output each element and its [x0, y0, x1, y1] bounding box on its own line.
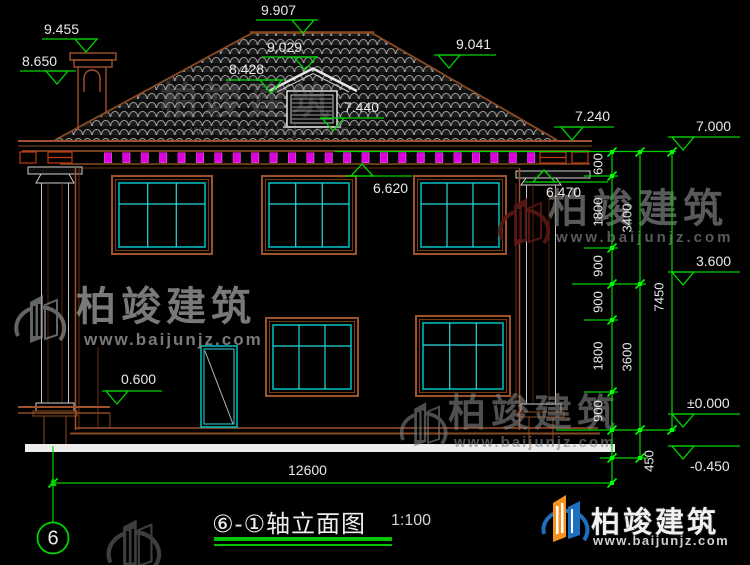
- watermark-url: www.baijunjz.com: [555, 229, 733, 246]
- watermark-right-low: 柏竣建筑 www.baijunjz.com: [402, 393, 620, 451]
- level-dormer-eave: 8.428: [229, 62, 264, 76]
- level-ridge: 9.907: [261, 3, 296, 17]
- level-chimney-top: 9.455: [44, 22, 79, 36]
- entry-door: [201, 346, 237, 427]
- window-f2-left: [112, 176, 212, 254]
- window-f1-mid: [266, 318, 358, 396]
- cornice: [18, 141, 592, 178]
- dim-floor-height: 3400: [621, 204, 634, 233]
- watermark-right-mid: 柏竣建筑 www.baijunjz.com: [500, 187, 733, 246]
- drawing-scale: 1:100: [391, 512, 431, 530]
- dim-floor-height: 3600: [621, 343, 634, 372]
- watermark-text: 柏竣建筑: [160, 81, 336, 123]
- dim-segment: 600: [592, 153, 605, 175]
- dim-total-height: 7450: [653, 283, 666, 312]
- drawing-title: ⑥-①轴立面图: [212, 504, 366, 539]
- dim-foot: 450: [643, 450, 656, 472]
- level-chimney-cap: 8.650: [22, 54, 57, 68]
- brand-logo-icon: [543, 495, 587, 542]
- level-floor1: ±0.000: [687, 396, 730, 410]
- level-floor2: 3.600: [696, 254, 731, 268]
- dim-segment: 900: [592, 400, 605, 422]
- level-parapet: 7.000: [696, 119, 731, 133]
- dim-segment: 1800: [592, 342, 605, 371]
- dentil-band: [104, 153, 542, 164]
- watermark-url: www.baijunjz.com: [453, 434, 615, 451]
- window-f2-mid: [262, 176, 356, 254]
- title-underline-thin: [214, 544, 392, 546]
- title-underline-thick: [214, 537, 392, 541]
- right-capital-band: [516, 171, 590, 178]
- window-f2-right: [414, 176, 506, 254]
- level-dormer-ridge: 9.029: [267, 40, 302, 54]
- elevation-linework: 柏竣建筑 www.baijunjz.com 柏竣建筑 www.baijunjz.…: [0, 0, 750, 565]
- watermark-logo-icon: [109, 519, 159, 565]
- watermark-text: 柏竣建筑: [76, 285, 256, 329]
- left-capital-band: [28, 167, 82, 174]
- level-eave-top: 7.240: [575, 109, 610, 123]
- watermark-left: 柏竣建筑 www.baijunjz.com: [16, 285, 262, 349]
- level-porch: 0.600: [121, 372, 156, 386]
- dim-segment: 1800: [592, 198, 605, 227]
- dim-segment: 900: [592, 255, 605, 277]
- dim-segment: 900: [592, 291, 605, 313]
- cad-elevation-drawing: 柏竣建筑 www.baijunjz.com 柏竣建筑 www.baijunjz.…: [0, 0, 750, 565]
- axis-bubble-number: 6: [47, 528, 58, 551]
- level-grade: -0.450: [690, 459, 730, 473]
- brand-url: www.baijunjz.com: [593, 533, 729, 548]
- level-capital-top: 6.470: [546, 185, 581, 199]
- level-eave-soffit: 6.620: [373, 181, 408, 195]
- watermark-logo-icon: [402, 402, 446, 446]
- watermark-logo-icon: [16, 295, 64, 343]
- level-roof-slope: 9.041: [456, 37, 491, 51]
- window-f1-right: [416, 316, 510, 396]
- watermark-url: www.baijunjz.com: [83, 330, 263, 349]
- watermark-logo-icon: [500, 198, 548, 246]
- dim-total-width: 12600: [288, 463, 327, 477]
- level-dormer-sill: 7.440: [344, 100, 379, 114]
